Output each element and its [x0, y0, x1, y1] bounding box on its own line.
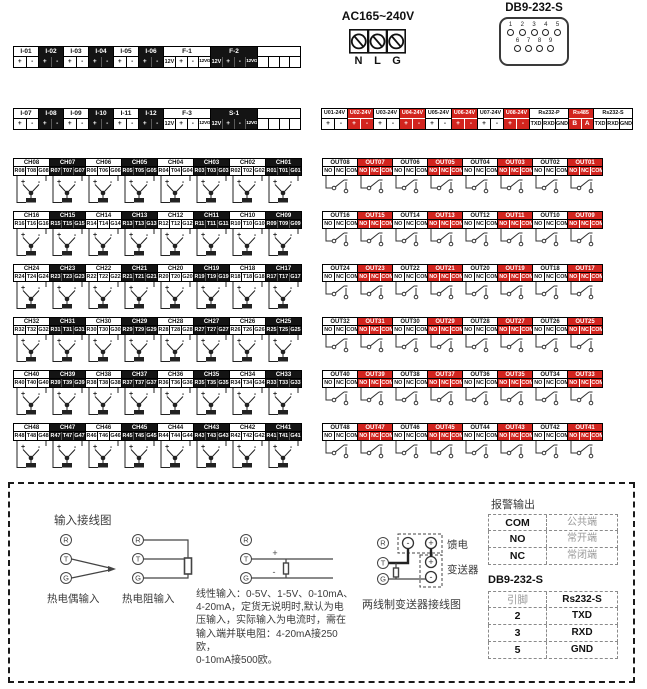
block-pin: NC: [545, 379, 557, 387]
table-cell: COM: [489, 515, 547, 530]
block-pin: G48: [38, 432, 49, 440]
output-block-out13: OUT13NONCCOM: [427, 211, 463, 251]
block-pin: NO: [498, 167, 510, 175]
block-label: OUT24: [322, 264, 358, 273]
terminal-block-label: I-06: [139, 47, 163, 57]
block-pin: NC: [335, 220, 347, 228]
block-pin: R10: [230, 220, 242, 228]
block-label: CH14: [85, 211, 122, 220]
table-cell: 常闭端: [547, 548, 617, 564]
channel-block-ch17: CH17R17T17G17+-: [265, 264, 302, 310]
channel-block-ch26: CH26R26T26G26+-: [229, 317, 266, 363]
block-pin: NO: [323, 326, 335, 334]
terminal-pin: -: [27, 57, 39, 67]
output-block-out02: OUT02NONCCOM: [532, 158, 568, 198]
channel-block-ch27: CH27R27T27G27+-: [193, 317, 230, 363]
block-pin: COM: [521, 326, 532, 334]
block-pin: COM: [451, 326, 462, 334]
block-pin: T05: [134, 167, 146, 175]
block-pin: COM: [451, 273, 462, 281]
terminal-pin: +: [322, 119, 335, 129]
block-pin: NC: [580, 220, 592, 228]
sensor-wiring-icon: +-: [265, 388, 302, 416]
block-pin: G05: [146, 167, 157, 175]
db9-pin-number: 7: [527, 38, 530, 44]
output-block-out33: OUT33NONCCOM: [567, 370, 603, 410]
output-block-out06: OUT06NONCCOM: [392, 158, 428, 198]
table-cell: 常开端: [547, 531, 617, 547]
block-pin: T40: [26, 379, 38, 387]
block-pin: NO: [498, 379, 510, 387]
block-pin: NC: [335, 432, 347, 440]
channel-block-ch32: CH32R32T32G32+-: [13, 317, 50, 363]
sensor-wiring-icon: +-: [229, 282, 266, 310]
block-pin: T01: [278, 167, 290, 175]
terminal-pin: +: [139, 57, 152, 67]
terminal-pin: -: [361, 119, 373, 129]
block-pin: T34: [242, 379, 254, 387]
block-pin: NC: [475, 379, 487, 387]
block-label: CH36: [157, 370, 194, 379]
block-label: CH35: [193, 370, 230, 379]
sensor-wiring-icon: +-: [157, 229, 194, 257]
terminal-block-u02-24v: U02-24V+-: [347, 108, 374, 130]
output-block-out08: OUT08NONCCOM: [322, 158, 358, 198]
output-block-out05: OUT05NONCCOM: [427, 158, 463, 198]
block-pin: R45: [122, 432, 134, 440]
block-pin: NC: [405, 379, 417, 387]
sensor-wiring-icon: +-: [121, 441, 158, 469]
block-pin: NC: [405, 167, 417, 175]
block-pin: COM: [556, 167, 567, 175]
block-pin: T02: [242, 167, 254, 175]
channel-block-ch19: CH19R19T19G19+-: [193, 264, 230, 310]
block-pin: G23: [74, 273, 85, 281]
terminal-block-rs232-s: Rs232-STXDRXDGND: [593, 108, 633, 130]
block-pin: R05: [122, 167, 134, 175]
block-pin: NO: [498, 273, 510, 281]
block-pin: G01: [290, 167, 301, 175]
block-pin: NO: [428, 432, 440, 440]
output-block-out25: OUT25NONCCOM: [567, 317, 603, 357]
terminal-block-u04-24v: U04-24V+-: [399, 108, 426, 130]
block-label: OUT47: [357, 423, 393, 432]
block-label: OUT32: [322, 317, 358, 326]
block-pin: COM: [591, 167, 602, 175]
block-pin: NO: [323, 273, 335, 281]
block-pin: NO: [323, 432, 335, 440]
block-pin: G08: [38, 167, 49, 175]
block-pin: NO: [358, 326, 370, 334]
block-pin: NO: [463, 326, 475, 334]
block-pin: T12: [170, 220, 182, 228]
svg-text:-: -: [407, 538, 410, 548]
sensor-wiring-icon: +-: [121, 282, 158, 310]
terminal-block-label: U05-24V: [426, 109, 451, 119]
block-pin: NC: [370, 432, 382, 440]
terminal-pin: 12V: [211, 119, 223, 129]
relay-contact-icon: [427, 335, 463, 357]
block-pin: COM: [556, 220, 567, 228]
terminal-pin: 12V: [164, 57, 176, 67]
channel-block-ch37: CH37R37T37G37+-: [121, 370, 158, 416]
block-pin: NC: [440, 220, 452, 228]
block-pin: COM: [381, 167, 392, 175]
terminal-block-u08-24v: U08-24V+-: [503, 108, 530, 130]
terminal-pin: -: [102, 119, 114, 129]
terminal-block-i-12: I-12+-: [138, 108, 164, 130]
channel-row-2: CH16R16T16G16+-CH15R15T15G15+-CH14R14T14…: [13, 211, 302, 257]
table-row: 5GND: [488, 642, 618, 659]
block-pin: NO: [463, 379, 475, 387]
block-pin: G35: [218, 379, 229, 387]
block-label: CH09: [265, 211, 302, 220]
terminal-pin: -: [152, 57, 164, 67]
relay-contact-icon: [357, 282, 393, 304]
block-pin: G45: [146, 432, 157, 440]
channel-block-ch10: CH10R10T10G10+-: [229, 211, 266, 257]
block-pin: COM: [556, 273, 567, 281]
terminal-pin: [280, 57, 291, 67]
relay-contact-icon: [392, 282, 428, 304]
block-pin: NO: [568, 326, 580, 334]
block-pin: COM: [416, 273, 427, 281]
db9-connector-label: DB9-232-S: [494, 2, 574, 14]
output-block-out48: OUT48NONCCOM: [322, 423, 358, 463]
relay-contact-icon: [322, 388, 358, 410]
output-block-out16: OUT16NONCCOM: [322, 211, 358, 251]
block-pin: NO: [358, 379, 370, 387]
output-block-out27: OUT27NONCCOM: [497, 317, 533, 357]
db9-bottom-pin-row: 6789: [514, 38, 554, 52]
block-pin: COM: [556, 432, 567, 440]
terminal-block-label: F-3: [164, 109, 210, 119]
block-pin: G25: [290, 326, 301, 334]
output-block-out12: OUT12NONCCOM: [462, 211, 498, 251]
svg-text:R: R: [380, 539, 386, 548]
block-pin: G13: [146, 220, 157, 228]
block-label: CH27: [193, 317, 230, 326]
terminal-pin: GND: [556, 119, 568, 129]
sensor-wiring-icon: +-: [229, 441, 266, 469]
block-pin: T37: [134, 379, 146, 387]
block-pin: R35: [194, 379, 206, 387]
block-pin: G43: [218, 432, 229, 440]
block-label: OUT13: [427, 211, 463, 220]
block-pin: NC: [545, 167, 557, 175]
block-pin: R21: [122, 273, 134, 281]
terminal-pin: [269, 57, 280, 67]
block-label: OUT22: [392, 264, 428, 273]
terminal-pin: 12V: [164, 119, 176, 129]
block-pin: NO: [498, 326, 510, 334]
block-label: OUT04: [462, 158, 498, 167]
block-pin: R34: [230, 379, 242, 387]
svg-text:R: R: [135, 536, 141, 545]
block-label: CH21: [121, 264, 158, 273]
block-pin: G37: [146, 379, 157, 387]
terminal-pin: TXD: [530, 119, 543, 129]
block-label: CH13: [121, 211, 158, 220]
terminal-block-i-06: I-06+-: [138, 46, 164, 68]
block-pin: R27: [194, 326, 206, 334]
terminal-block-label: I-02: [39, 47, 63, 57]
terminal-block-label: [258, 47, 300, 57]
block-pin: NO: [393, 167, 405, 175]
relay-contact-icon: [392, 335, 428, 357]
sensor-wiring-icon: +-: [85, 282, 122, 310]
block-pin: T08: [26, 167, 38, 175]
block-pin: NC: [580, 326, 592, 334]
terminal-pin: +: [176, 119, 188, 129]
block-pin: G14: [110, 220, 121, 228]
terminal-block-f-3: F-312V+-12VG: [163, 108, 211, 130]
block-label: OUT40: [322, 370, 358, 379]
block-label: CH44: [157, 423, 194, 432]
block-pin: NC: [475, 273, 487, 281]
block-pin: T43: [206, 432, 218, 440]
output-block-out29: OUT29NONCCOM: [427, 317, 463, 357]
block-pin: NO: [533, 167, 545, 175]
svg-text:G: G: [243, 574, 249, 583]
block-pin: R39: [50, 379, 62, 387]
terminal-pin: [258, 119, 269, 129]
block-pin: G03: [218, 167, 229, 175]
channel-block-ch28: CH28R28T28G28+-: [157, 317, 194, 363]
terminal-block-label: I-12: [139, 109, 163, 119]
db9-pin-hole-icon: [519, 29, 526, 36]
output-block-out32: OUT32NONCCOM: [322, 317, 358, 357]
svg-text:-: -: [430, 572, 433, 582]
channel-block-ch46: CH46R46T46G46+-: [85, 423, 122, 469]
terminal-block-i-01: I-01+-: [13, 46, 39, 68]
output-block-out39: OUT39NONCCOM: [357, 370, 393, 410]
block-pin: NO: [393, 220, 405, 228]
block-pin: G30: [110, 326, 121, 334]
channel-block-ch21: CH21R21T21G21+-: [121, 264, 158, 310]
block-pin: NO: [393, 273, 405, 281]
terminal-block-label: S-1: [211, 109, 257, 119]
table-row: 3RXD: [488, 625, 618, 642]
relay-contact-icon: [322, 335, 358, 357]
block-label: OUT26: [532, 317, 568, 326]
relay-contact-icon: [497, 229, 533, 251]
relay-contact-icon: [497, 441, 533, 463]
block-pin: NO: [463, 273, 475, 281]
block-pin: R18: [230, 273, 242, 281]
block-label: OUT03: [497, 158, 533, 167]
block-pin: NC: [440, 379, 452, 387]
block-pin: COM: [346, 326, 357, 334]
block-pin: NO: [568, 167, 580, 175]
block-label: CH42: [229, 423, 266, 432]
terminal-pin: -: [102, 57, 114, 67]
block-pin: T41: [278, 432, 290, 440]
channel-block-ch24: CH24R24T24G24+-: [13, 264, 50, 310]
block-pin: G31: [74, 326, 85, 334]
terminal-pin: +: [478, 119, 491, 129]
block-pin: COM: [486, 220, 497, 228]
block-label: CH39: [49, 370, 86, 379]
block-label: CH15: [49, 211, 86, 220]
block-pin: COM: [416, 220, 427, 228]
block-pin: NO: [323, 167, 335, 175]
block-pin: R32: [14, 326, 26, 334]
block-pin: COM: [416, 326, 427, 334]
terminal-pin: +: [223, 57, 235, 67]
relay-contact-icon: [322, 229, 358, 251]
output-block-out14: OUT14NONCCOM: [392, 211, 428, 251]
output-row-5: OUT40NONCCOMOUT39NONCCOMOUT38NONCCOMOUT3…: [322, 370, 603, 410]
block-pin: COM: [346, 220, 357, 228]
block-pin: T23: [62, 273, 74, 281]
sensor-wiring-icon: +-: [265, 335, 302, 363]
channel-block-ch43: CH43R43T43G43+-: [193, 423, 230, 469]
terminal-pin: B: [569, 119, 582, 129]
output-row-4: OUT32NONCCOMOUT31NONCCOMOUT30NONCCOMOUT2…: [322, 317, 603, 357]
block-pin: R15: [50, 220, 62, 228]
block-pin: R22: [86, 273, 98, 281]
block-pin: COM: [486, 379, 497, 387]
channel-block-ch07: CH07R07T07G07+-: [49, 158, 86, 204]
terminal-pin: +: [176, 57, 188, 67]
block-label: OUT12: [462, 211, 498, 220]
channel-block-ch14: CH14R14T14G14+-: [85, 211, 122, 257]
terminal-pin: +: [89, 119, 102, 129]
output-block-out03: OUT03NONCCOM: [497, 158, 533, 198]
block-label: OUT42: [532, 423, 568, 432]
block-pin: T32: [26, 326, 38, 334]
terminal-pin: +: [114, 57, 127, 67]
relay-contact-icon: [532, 441, 568, 463]
terminal-l-label: L: [368, 55, 387, 67]
channel-block-ch41: CH41R41T41G41+-: [265, 423, 302, 469]
block-pin: NO: [463, 432, 475, 440]
block-pin: COM: [381, 326, 392, 334]
sensor-wiring-icon: +-: [49, 388, 86, 416]
terminal-pin: +: [14, 119, 27, 129]
block-pin: T29: [134, 326, 146, 334]
sensor-wiring-icon: +-: [49, 441, 86, 469]
block-pin: G24: [38, 273, 49, 281]
block-label: CH37: [121, 370, 158, 379]
ac-power-label: AC165~240V: [338, 9, 418, 23]
block-label: CH07: [49, 158, 86, 167]
block-pin: COM: [591, 220, 602, 228]
block-pin: G02: [254, 167, 265, 175]
block-pin: R04: [158, 167, 170, 175]
relay-contact-icon: [497, 335, 533, 357]
terminal-block-label: Rs485: [569, 109, 593, 119]
block-pin: NC: [370, 167, 382, 175]
block-label: OUT05: [427, 158, 463, 167]
table-cell: 引脚: [489, 592, 547, 607]
relay-contact-icon: [567, 388, 603, 410]
block-pin: T39: [62, 379, 74, 387]
block-label: CH04: [157, 158, 194, 167]
block-pin: COM: [451, 167, 462, 175]
block-pin: NO: [498, 432, 510, 440]
relay-contact-icon: [532, 176, 568, 198]
block-pin: COM: [591, 273, 602, 281]
sensor-wiring-icon: +-: [229, 176, 266, 204]
output-row-1: OUT08NONCCOMOUT07NONCCOMOUT06NONCCOMOUT0…: [322, 158, 603, 198]
block-label: OUT01: [567, 158, 603, 167]
db9-pin-number: 6: [516, 38, 519, 44]
channel-block-ch38: CH38R38T38G38+-: [85, 370, 122, 416]
svg-text:+: +: [428, 557, 433, 567]
block-label: OUT15: [357, 211, 393, 220]
block-pin: COM: [486, 167, 497, 175]
block-label: OUT41: [567, 423, 603, 432]
relay-contact-icon: [427, 229, 463, 251]
db9-pin-3: 3: [531, 22, 538, 36]
sensor-wiring-icon: +-: [157, 441, 194, 469]
channel-block-ch01: CH01R01T01G01+-: [265, 158, 302, 204]
block-pin: R06: [86, 167, 98, 175]
db9-pin-hole-icon: [547, 45, 554, 52]
output-block-out41: OUT41NONCCOM: [567, 423, 603, 463]
block-label: CH28: [157, 317, 194, 326]
terminal-block-label: I-03: [64, 47, 88, 57]
block-pin: R19: [194, 273, 206, 281]
block-label: CH19: [193, 264, 230, 273]
relay-contact-icon: [532, 282, 568, 304]
block-pin: COM: [556, 379, 567, 387]
channel-block-ch33: CH33R33T33G33+-: [265, 370, 302, 416]
sensor-wiring-icon: +-: [49, 282, 86, 310]
terminal-pin: +: [374, 119, 387, 129]
block-label: CH31: [49, 317, 86, 326]
relay-contact-icon: [427, 282, 463, 304]
block-label: CH48: [13, 423, 50, 432]
block-pin: R41: [266, 432, 278, 440]
output-block-out19: OUT19NONCCOM: [497, 264, 533, 304]
terminal-pin: -: [335, 119, 347, 129]
block-pin: G38: [110, 379, 121, 387]
terminal-block-i-07: I-07+-: [13, 108, 39, 130]
block-pin: G42: [254, 432, 265, 440]
block-pin: R16: [14, 220, 26, 228]
terminal-pin: -: [52, 57, 64, 67]
channel-block-ch45: CH45R45T45G45+-: [121, 423, 158, 469]
sensor-wiring-icon: +-: [193, 229, 230, 257]
block-pin: COM: [591, 326, 602, 334]
db9-pin-hole-icon: [525, 45, 532, 52]
block-pin: G18: [254, 273, 265, 281]
block-pin: R29: [122, 326, 134, 334]
block-label: CH34: [229, 370, 266, 379]
block-pin: NO: [323, 379, 335, 387]
output-block-out36: OUT36NONCCOM: [462, 370, 498, 410]
block-pin: NC: [510, 167, 522, 175]
svg-text:T: T: [136, 555, 141, 564]
terminal-block-label: I-09: [64, 109, 88, 119]
relay-contact-icon: [357, 335, 393, 357]
block-pin: NC: [510, 273, 522, 281]
block-pin: COM: [416, 432, 427, 440]
relay-contact-icon: [497, 388, 533, 410]
block-pin: T06: [98, 167, 110, 175]
channel-block-ch05: CH05R05T05G05+-: [121, 158, 158, 204]
block-pin: COM: [486, 326, 497, 334]
block-pin: COM: [521, 379, 532, 387]
channel-block-ch31: CH31R31T31G31+-: [49, 317, 86, 363]
block-pin: COM: [381, 379, 392, 387]
block-pin: NO: [568, 220, 580, 228]
block-label: CH08: [13, 158, 50, 167]
block-pin: COM: [486, 273, 497, 281]
